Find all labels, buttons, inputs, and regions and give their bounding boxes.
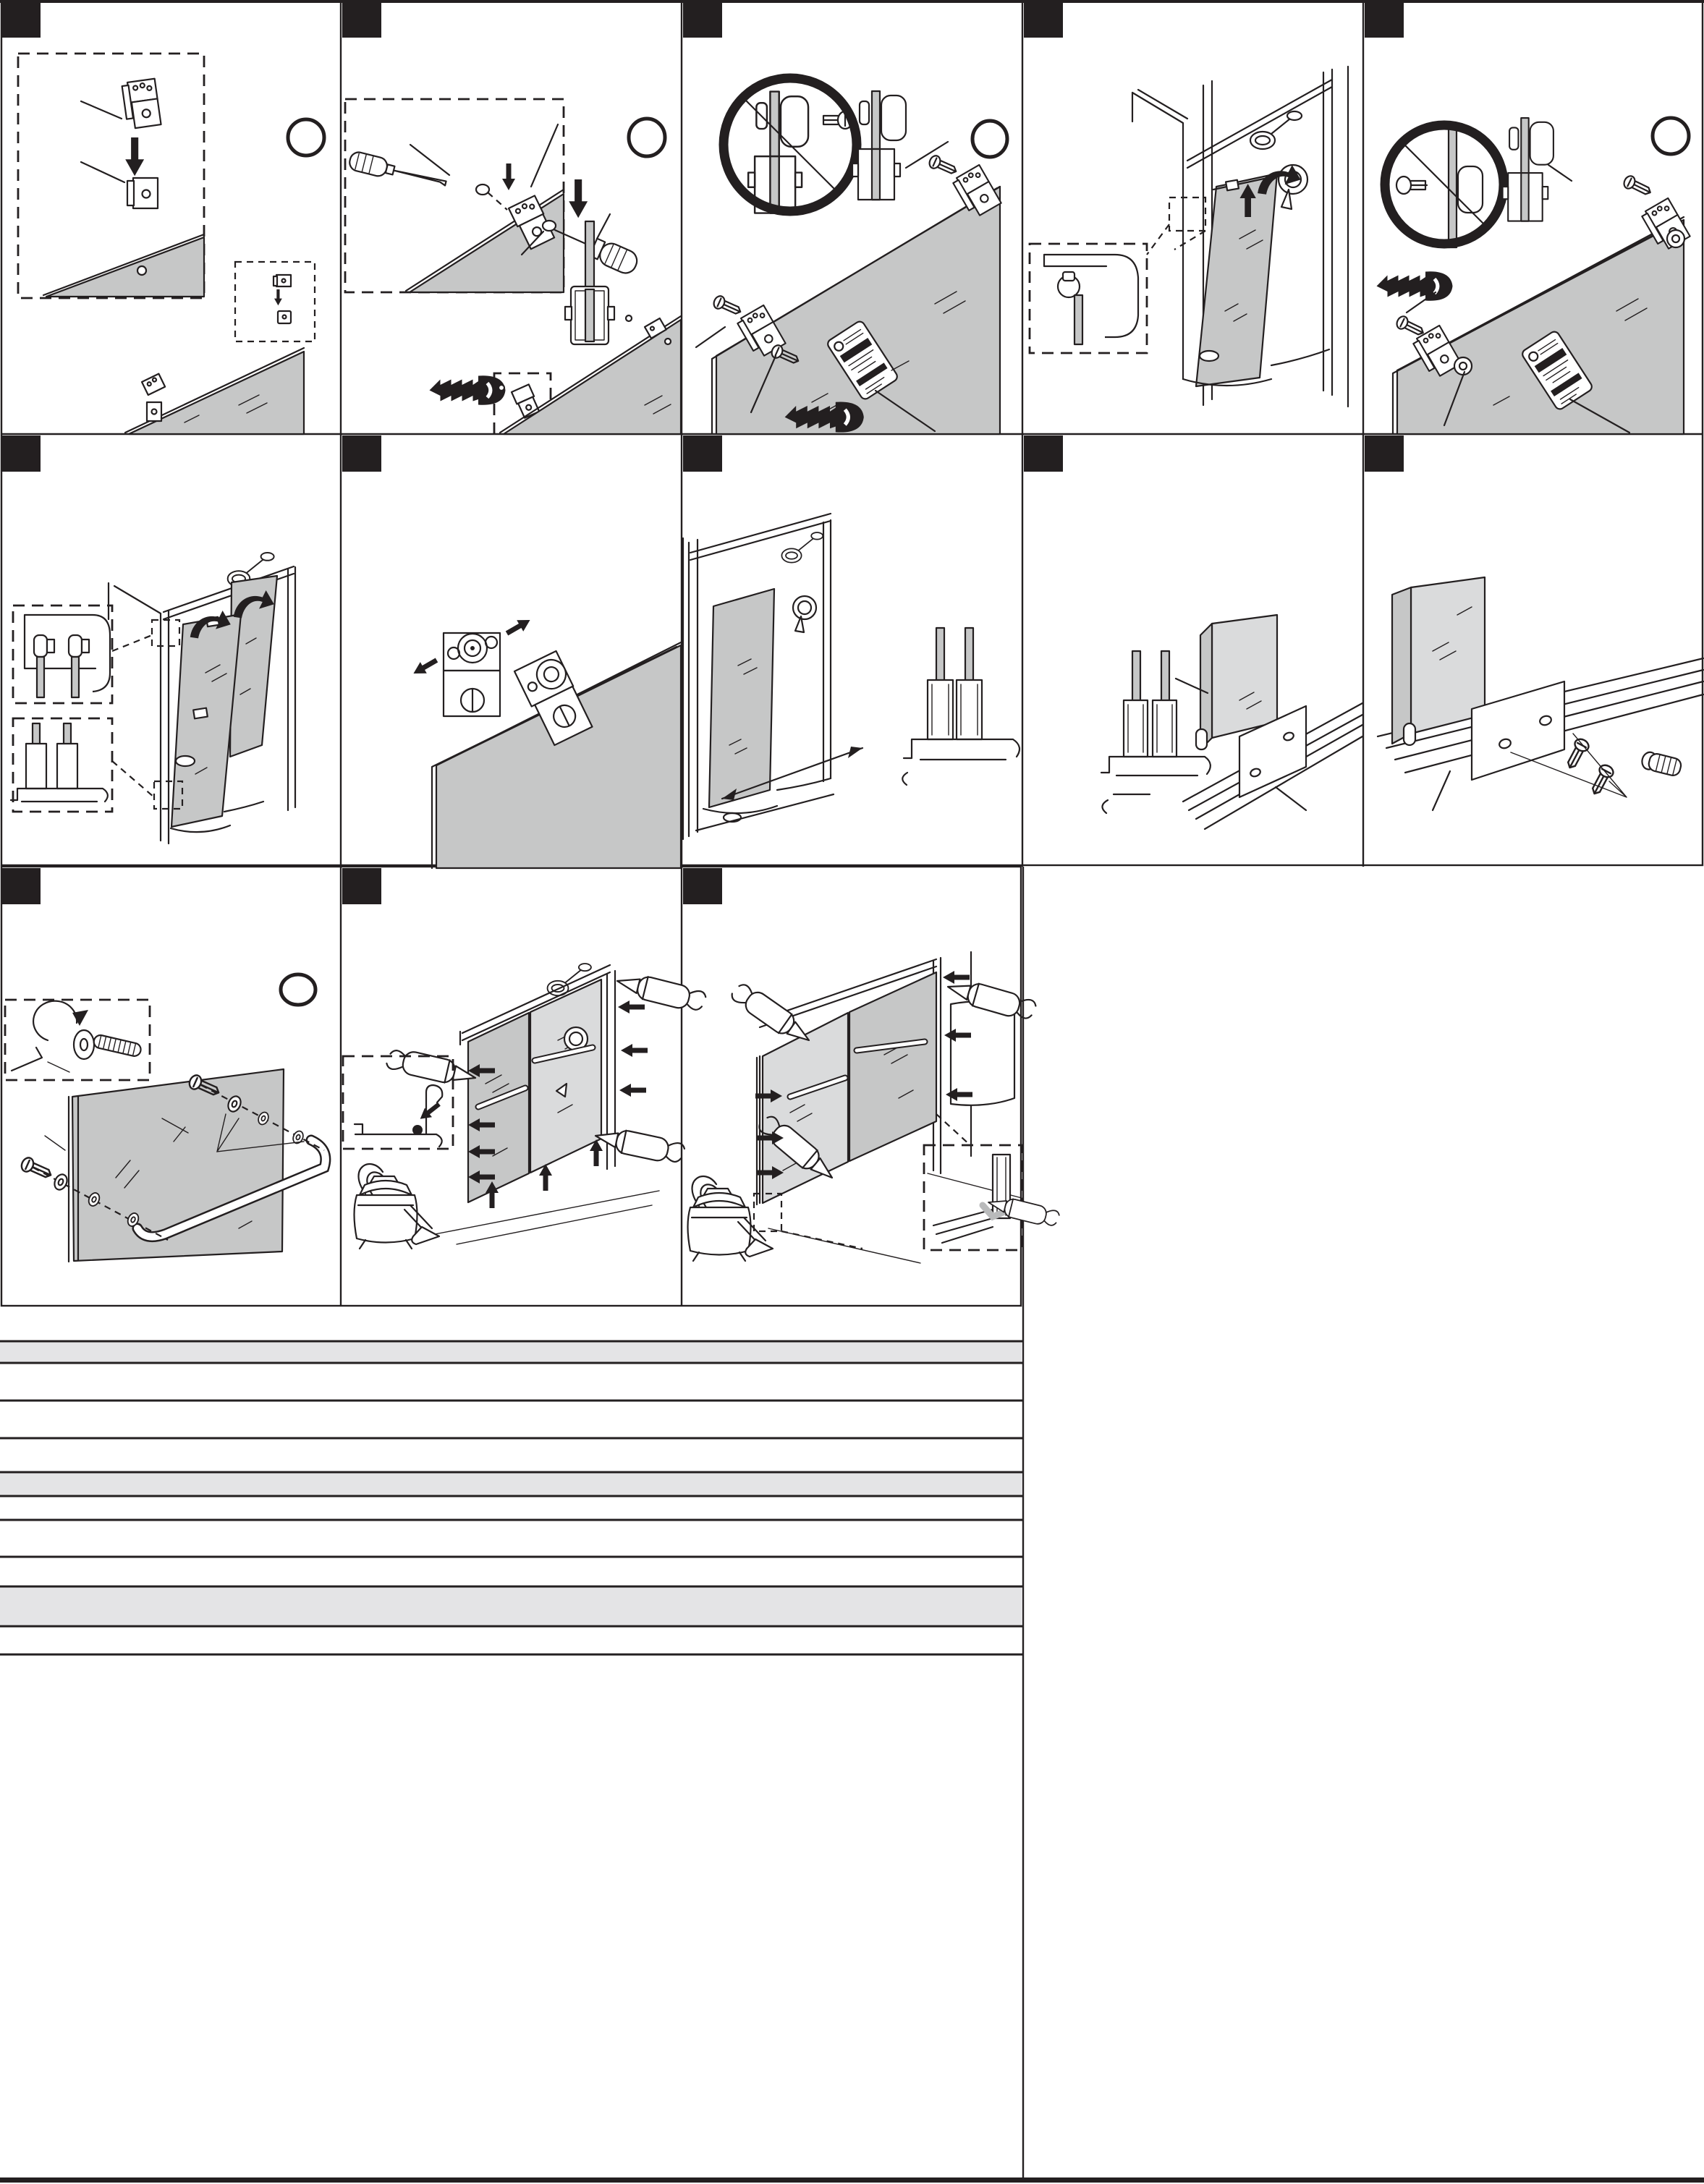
- step-marker-panel-7: [342, 435, 381, 472]
- step-marker-panel-8: [683, 435, 722, 472]
- panel-3-illustration: [696, 78, 1001, 434]
- step-circle-panel-11: [281, 974, 315, 1005]
- top-rule: [0, 0, 1704, 3]
- table-header-bar: [0, 1341, 1022, 1363]
- step-circle-panel-3: [972, 121, 1007, 157]
- table-header-bar: [0, 1472, 1022, 1496]
- panel-6-illustration: [11, 553, 295, 844]
- step-marker-panel-9: [1024, 435, 1063, 472]
- step-circle-panel-2: [629, 119, 665, 156]
- table-header-bar: [0, 1586, 1022, 1626]
- panel-13-illustration: [688, 952, 1061, 1263]
- panel-4-illustration: [1030, 67, 1348, 407]
- panel-10-illustration: [1378, 577, 1703, 810]
- panel-8-illustration: [683, 514, 1020, 839]
- panel-11-illustration: [5, 1000, 326, 1262]
- panel-7-illustration: [410, 614, 681, 868]
- step-marker-panel-1: [1, 1, 41, 38]
- step-circle-panel-1: [288, 119, 324, 156]
- step-marker-panel-13: [683, 868, 722, 904]
- parts-table: [0, 1341, 1022, 1654]
- panel-9-illustration: [1101, 615, 1362, 829]
- instruction-sheet-canvas: [0, 0, 1704, 2184]
- step-marker-panel-10: [1365, 435, 1404, 472]
- panel-1-illustration: [18, 54, 315, 434]
- step-marker-panel-12: [342, 868, 381, 904]
- step-marker-panel-6: [1, 435, 41, 472]
- step-circle-panel-5: [1653, 118, 1689, 154]
- step-marker-panel-4: [1024, 1, 1063, 38]
- step-marker-panel-11: [1, 868, 41, 904]
- step-marker-panel-5: [1365, 1, 1404, 38]
- step-marker-panel-3: [683, 1, 722, 38]
- panel-12-illustration: [343, 964, 707, 1249]
- instruction-sheet-page: [0, 0, 1704, 2184]
- bottom-rule: [0, 2177, 1704, 2183]
- panel-2-illustration: [345, 99, 681, 434]
- panel-5-illustration: [1377, 118, 1690, 434]
- step-marker-panel-2: [342, 1, 381, 38]
